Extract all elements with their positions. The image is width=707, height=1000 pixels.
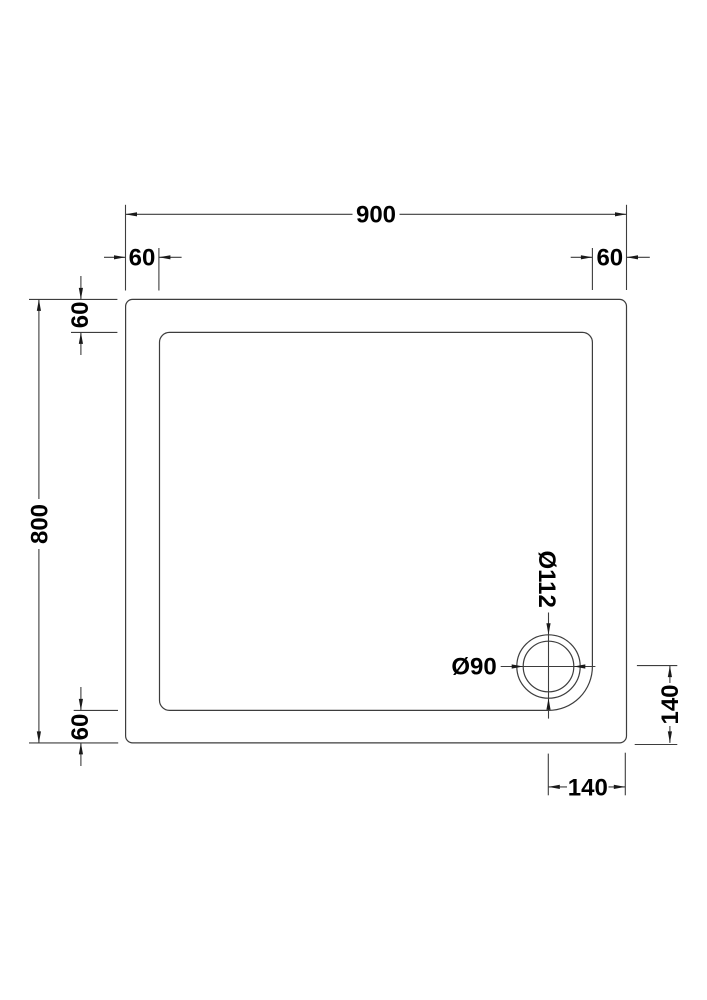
svg-text:60: 60 [67,714,94,741]
svg-text:900: 900 [356,202,396,229]
svg-text:Ø90: Ø90 [451,654,496,681]
svg-text:140: 140 [568,775,608,802]
svg-text:800: 800 [26,504,53,544]
svg-text:140: 140 [657,684,684,724]
svg-text:60: 60 [67,302,94,329]
svg-text:60: 60 [596,245,623,272]
svg-text:60: 60 [129,245,156,272]
svg-text:Ø112: Ø112 [533,551,560,608]
